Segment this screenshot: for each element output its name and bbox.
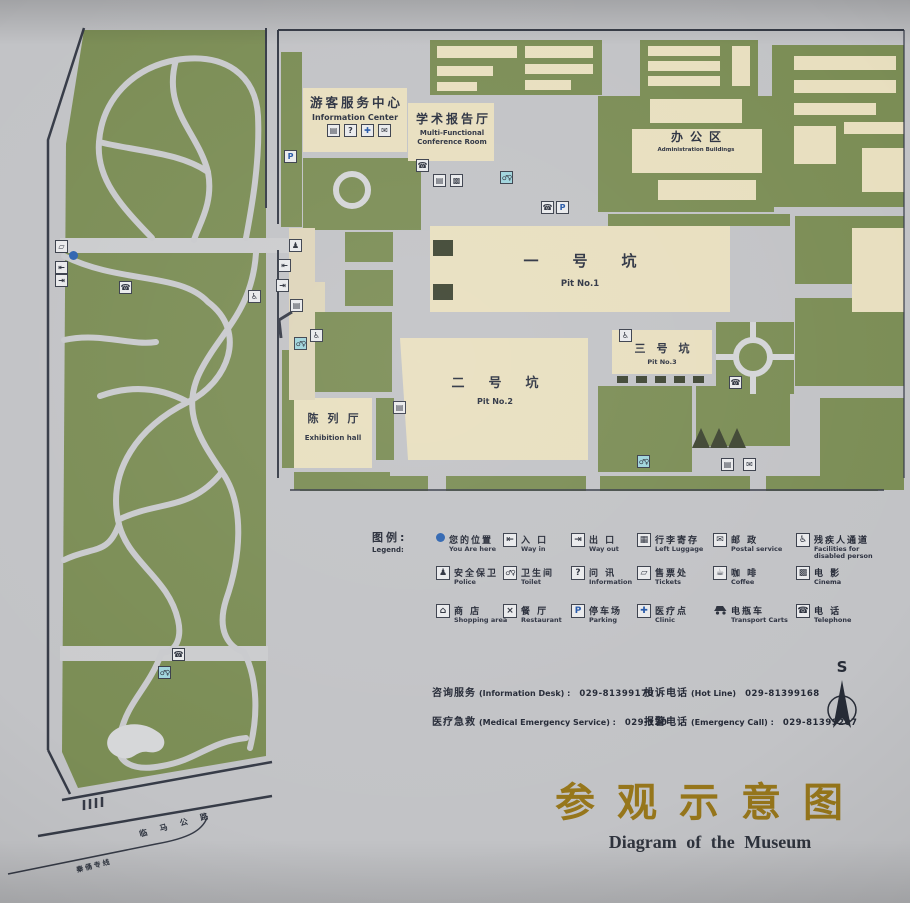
- clinic-icon: ✚: [361, 124, 374, 137]
- legend-label: 问 讯Information: [589, 566, 632, 586]
- conference-en: Multi-Functional Conference Room: [402, 129, 502, 147]
- kiosk-icon: ▤: [393, 401, 406, 414]
- disabled-icon: ♿: [796, 533, 810, 547]
- you-are-here-icon: [436, 533, 445, 542]
- legend-item-clinic: ✚医疗点Clinic: [637, 604, 688, 624]
- legend-item-coffee: ☕咖 啡Coffee: [713, 566, 758, 586]
- legend-label-en: Coffee: [731, 579, 758, 586]
- legend-row-3: ⌂商 店Shopping area×餐 厅RestaurantP停车场Parki…: [436, 604, 902, 634]
- toilet-icon: ♂♀: [637, 455, 650, 468]
- legend-label-en: Tickets: [655, 579, 688, 586]
- legend-label-en: You Are here: [449, 546, 496, 553]
- legend-label: 医疗点Clinic: [655, 604, 688, 624]
- legend-label-en: Police: [454, 579, 498, 586]
- legend-item-left-luggage: ▦行李寄存Left Luggage: [637, 533, 703, 553]
- compass: S: [822, 660, 862, 740]
- way-out-icon: ⇥: [276, 279, 289, 292]
- map-title-zh: 参观示意图: [545, 770, 875, 828]
- legend-label-en: Toilet: [521, 579, 554, 586]
- contact-en: (Emergency Call) :: [691, 718, 774, 727]
- admin-zh: 办公区: [636, 128, 763, 145]
- label-pit3: 三号坑 Pit No.3: [616, 340, 708, 366]
- police-icon: ♟: [436, 566, 450, 580]
- legend-label: 邮 政Postal service: [731, 533, 782, 553]
- legend-title-en: Legend:: [372, 546, 407, 554]
- legend-label: 行李寄存Left Luggage: [655, 533, 703, 553]
- coffee-icon: ☕: [713, 566, 727, 580]
- legend-label-en: Information: [589, 579, 632, 586]
- legend-label: 电瓶车Transport Carts: [731, 604, 788, 624]
- cinema-icon: ▩: [450, 174, 463, 187]
- legend-label-en: Postal service: [731, 546, 782, 553]
- legend-item-way-out: ⇥出 口Way out: [571, 533, 619, 553]
- contact-zh: 咨询服务: [432, 688, 476, 699]
- legend-label: 入 口Way in: [521, 533, 548, 553]
- map-title-en: Diagram of the Museum: [545, 832, 875, 853]
- transport-icon: [713, 604, 727, 618]
- legend-item-information: ?问 讯Information: [571, 566, 632, 586]
- pit2-en: Pit No.2: [430, 397, 560, 406]
- legend-label-en: Facilities for disabled person: [814, 546, 880, 561]
- parking-icon: P: [556, 201, 569, 214]
- museum-map-sign: 游客服务中心 Information Center 学术报告厅 Multi-Fu…: [0, 0, 910, 903]
- legend-label: 卫生间Toilet: [521, 566, 554, 586]
- toilet-icon: ♂♀: [503, 566, 517, 580]
- postal-icon: ✉: [713, 533, 727, 547]
- legend-item-telephone: ☎电 话Telephone: [796, 604, 851, 624]
- legend-label: 出 口Way out: [589, 533, 619, 553]
- toilet-icon: ♂♀: [294, 337, 307, 350]
- restaurant-icon: ×: [503, 604, 517, 618]
- toilet-icon: ♂♀: [500, 171, 513, 184]
- legend-label: 安全保卫Police: [454, 566, 498, 586]
- legend-item-you-are-here: 您的位置You Are here: [436, 533, 496, 553]
- legend-label-en: Way in: [521, 546, 548, 553]
- exhibition-en: Exhibition hall: [294, 434, 372, 442]
- legend-row-2: ♟安全保卫Police♂♀卫生间Toilet?问 讯Information▱售票…: [436, 566, 902, 596]
- disabled-icon: ♿: [248, 290, 261, 303]
- kiosk-icon: ▤: [290, 299, 303, 312]
- legend-label-en: Clinic: [655, 617, 688, 624]
- pit2-zh: 二号坑: [430, 372, 584, 391]
- label-pit1: 一号坑 Pit No.1: [460, 250, 700, 289]
- label-admin: 办公区 Administration Buildings: [636, 128, 756, 153]
- you-are-here-icon: [69, 251, 78, 260]
- admin-en: Administration Buildings: [636, 147, 756, 153]
- legend-title: 图例: Legend:: [372, 529, 407, 554]
- legend-item-shop: ⌂商 店Shopping area: [436, 604, 507, 624]
- legend-label: 售票处Tickets: [655, 566, 688, 586]
- kiosk-icon: ▤: [433, 174, 446, 187]
- information-icon: ?: [571, 566, 585, 580]
- contact-zh: 投诉电话: [644, 688, 688, 699]
- legend-label: 停车场Parking: [589, 604, 622, 624]
- legend-item-disabled: ♿残疾人通道Facilities for disabled person: [796, 533, 880, 561]
- shop-icon: ⌂: [436, 604, 450, 618]
- legend-label: 残疾人通道Facilities for disabled person: [814, 533, 880, 561]
- contact-numbers: 咨询服务(Information Desk) :029-81399170投诉电话…: [432, 681, 868, 729]
- legend-item-cinema: ▩电 影Cinema: [796, 566, 841, 586]
- legend-label: 商 店Shopping area: [454, 604, 507, 624]
- legend-label-en: Parking: [589, 617, 622, 624]
- legend-label-en: Telephone: [814, 617, 851, 624]
- label-info-center: 游客服务中心 Information Center: [303, 92, 407, 122]
- parking-icon: P: [571, 604, 585, 618]
- legend-label-en: Way out: [589, 546, 619, 553]
- telephone-icon: ☎: [541, 201, 554, 214]
- legend-label-en: Shopping area: [454, 617, 507, 624]
- way-out-icon: ⇥: [571, 533, 585, 547]
- telephone-icon: ☎: [172, 648, 185, 661]
- legend-row-1: 您的位置You Are here⇤入 口Way in⇥出 口Way out▦行李…: [436, 533, 902, 563]
- kiosk-icon: ▤: [721, 458, 734, 471]
- legend-item-restaurant: ×餐 厅Restaurant: [503, 604, 562, 624]
- pit3-zh: 三号坑: [616, 340, 719, 356]
- way-in-icon: ⇤: [55, 261, 68, 274]
- police-icon: ♟: [289, 239, 302, 252]
- ancient-wall-zigzag: [692, 428, 746, 448]
- toilet-icon: ♂♀: [158, 666, 171, 679]
- legend-label-en: Restaurant: [521, 617, 562, 624]
- contact-line: 咨询服务(Information Desk) :029-81399170: [432, 681, 644, 700]
- tickets-icon: ▱: [637, 566, 651, 580]
- telephone-icon: ☎: [119, 281, 132, 294]
- cinema-icon: ▩: [796, 566, 810, 580]
- left-luggage-icon: ▦: [637, 533, 651, 547]
- telephone-icon: ☎: [796, 604, 810, 618]
- label-pit2: 二号坑 Pit No.2: [430, 372, 560, 406]
- kiosk-icon: ▤: [327, 124, 340, 137]
- tickets-icon: ▱: [55, 240, 68, 253]
- legend-title-zh: 图例:: [372, 529, 407, 545]
- legend-item-way-in: ⇤入 口Way in: [503, 533, 548, 553]
- label-conference: 学术报告厅 Multi-Functional Conference Room: [402, 110, 502, 147]
- contact-line: 医疗急救(Medical Emergency Service) :029-120: [432, 710, 644, 729]
- legend-item-transport: 电瓶车Transport Carts: [713, 604, 788, 624]
- contact-en: (Information Desk) :: [479, 689, 570, 698]
- contact-number: 029-81399168: [745, 689, 820, 699]
- way-out-icon: ⇥: [55, 274, 68, 287]
- contact-en: (Hot Line): [691, 689, 736, 698]
- compass-needle-icon: [824, 674, 860, 736]
- legend-label-en: Left Luggage: [655, 546, 703, 553]
- info-center-zh: 游客服务中心: [303, 92, 410, 111]
- contact-number: 029-81399170: [579, 689, 654, 699]
- legend-label-en: Cinema: [814, 579, 841, 586]
- legend-label-en: Transport Carts: [731, 617, 788, 624]
- postal-icon: ✉: [743, 458, 756, 471]
- legend-item-postal: ✉邮 政Postal service: [713, 533, 782, 553]
- info-center-en: Information Center: [303, 113, 407, 122]
- legend-label: 电 影Cinema: [814, 566, 841, 586]
- way-in-icon: ⇤: [503, 533, 517, 547]
- legend-label: 咖 啡Coffee: [731, 566, 758, 586]
- disabled-icon: ♿: [310, 329, 323, 342]
- contact-zh: 报警电话: [644, 717, 688, 728]
- parking-icon: P: [284, 150, 297, 163]
- compass-south-label: S: [822, 660, 862, 674]
- information-icon: ?: [344, 124, 357, 137]
- legend-item-toilet: ♂♀卫生间Toilet: [503, 566, 554, 586]
- way-in-icon: ⇤: [278, 259, 291, 272]
- pit1-en: Pit No.1: [460, 279, 700, 289]
- contact-en: (Medical Emergency Service) :: [479, 718, 616, 727]
- legend-label: 您的位置You Are here: [449, 533, 496, 553]
- telephone-icon: ☎: [416, 159, 429, 172]
- label-exhibition: 陈列厅 Exhibition hall: [294, 410, 372, 442]
- telephone-icon: ☎: [729, 376, 742, 389]
- legend-item-tickets: ▱售票处Tickets: [637, 566, 688, 586]
- pit3-en: Pit No.3: [616, 358, 708, 366]
- clinic-icon: ✚: [637, 604, 651, 618]
- exhibition-zh: 陈列厅: [294, 410, 381, 426]
- legend-label: 电 话Telephone: [814, 604, 851, 624]
- legend-label: 餐 厅Restaurant: [521, 604, 562, 624]
- conference-zh: 学术报告厅: [402, 110, 505, 127]
- contact-zh: 医疗急救: [432, 717, 476, 728]
- disabled-icon: ♿: [619, 329, 632, 342]
- legend-item-police: ♟安全保卫Police: [436, 566, 498, 586]
- legend-item-parking: P停车场Parking: [571, 604, 622, 624]
- postal-icon: ✉: [378, 124, 391, 137]
- pit1-zh: 一号坑: [460, 250, 734, 271]
